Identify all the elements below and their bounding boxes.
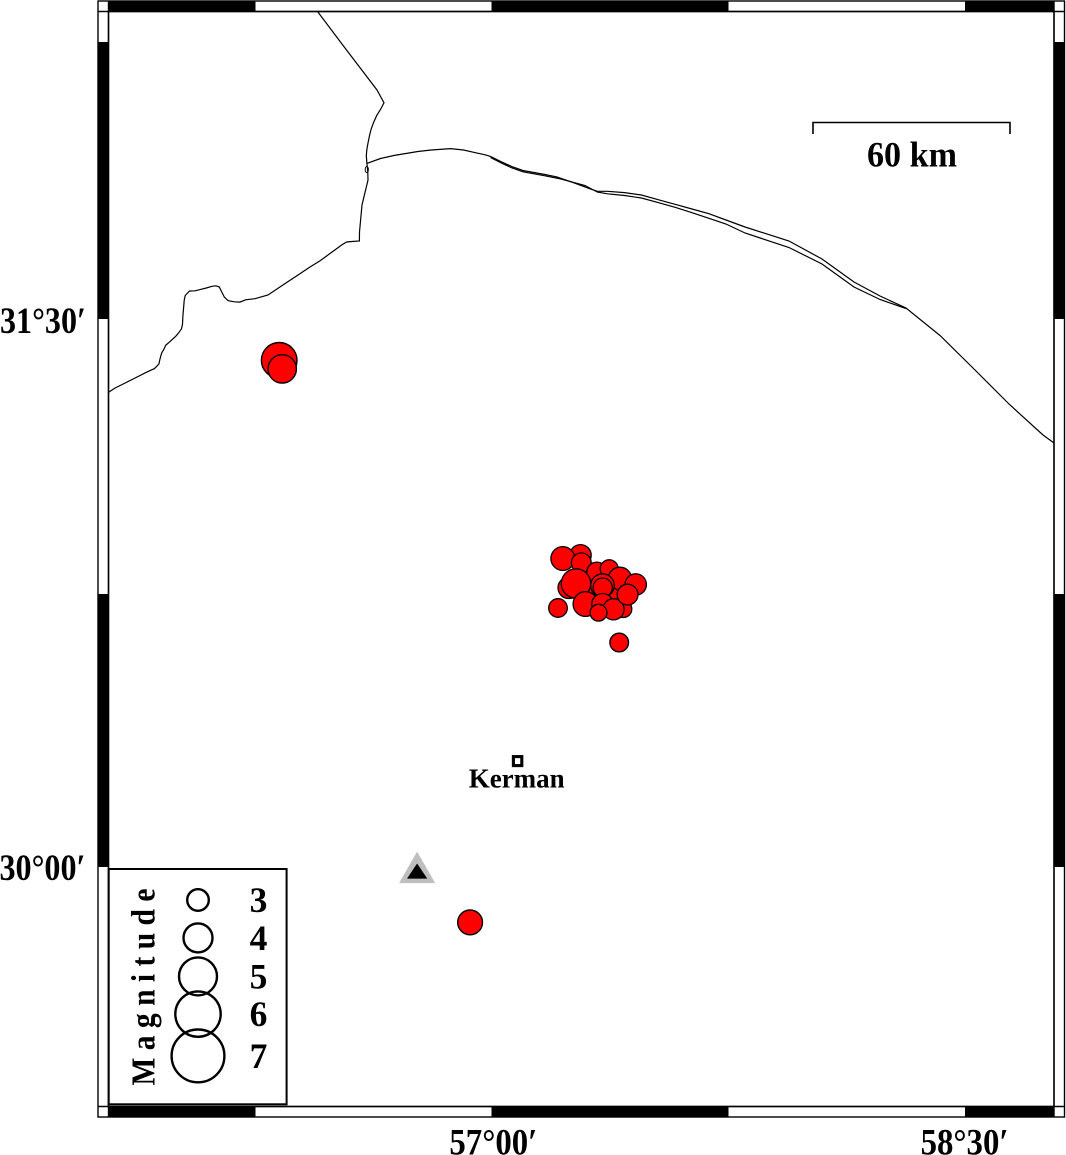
svg-text:31°30′: 31°30′ (0, 301, 86, 342)
svg-text:6: 6 (250, 994, 268, 1034)
svg-text:60 km: 60 km (867, 135, 957, 175)
svg-text:M a g n i t u d e: M a g n i t u d e (126, 889, 163, 1086)
svg-text:58°30′: 58°30′ (921, 1123, 1009, 1155)
svg-text:5: 5 (250, 956, 268, 996)
svg-text:Kerman: Kerman (469, 764, 565, 794)
svg-text:30°00′: 30°00′ (0, 848, 86, 889)
svg-text:57°00′: 57°00′ (449, 1123, 537, 1155)
svg-text:4: 4 (250, 918, 268, 958)
svg-text:3: 3 (250, 880, 268, 920)
svg-text:7: 7 (250, 1036, 268, 1076)
